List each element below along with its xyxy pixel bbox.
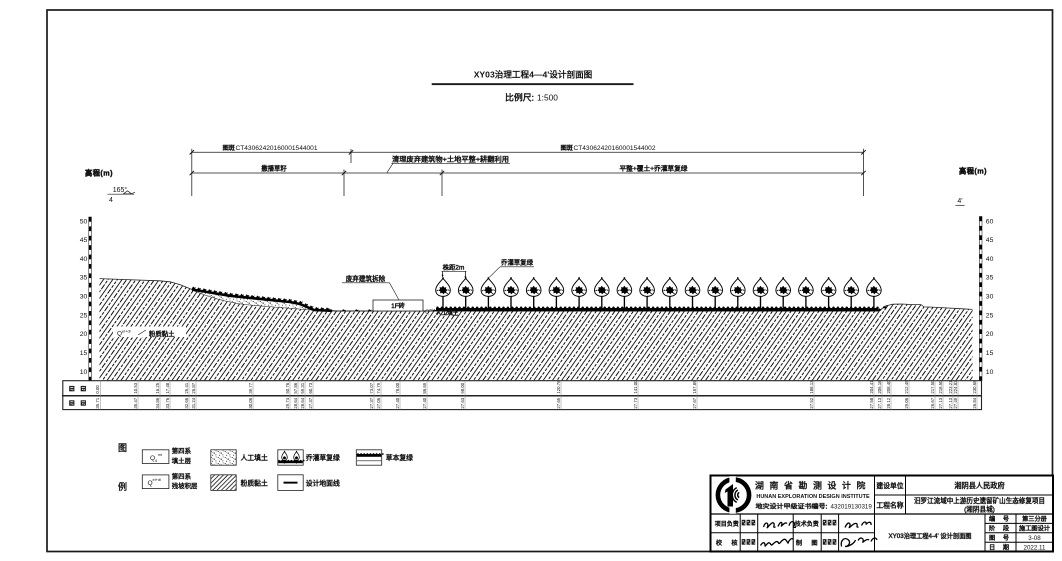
svg-text:阶 段: 阶 段: [989, 525, 1012, 533]
svg-text:10: 10: [80, 369, 88, 376]
svg-text:208.40: 208.40: [886, 380, 891, 394]
svg-text:157.89: 157.89: [692, 380, 697, 394]
svg-text:45: 45: [80, 237, 88, 244]
svg-text:2022.11: 2022.11: [1024, 544, 1046, 551]
svg-text:高程(m): 高程(m): [85, 169, 113, 178]
svg-text:218.50: 218.50: [938, 380, 943, 394]
svg-text:核: 核: [731, 539, 737, 547]
svg-text:27.37: 27.37: [369, 397, 374, 408]
svg-text:35.71: 35.71: [95, 397, 100, 408]
svg-text:20: 20: [986, 331, 994, 338]
svg-text:40: 40: [80, 256, 88, 263]
svg-text:78.00: 78.00: [395, 382, 400, 393]
svg-text:33.76: 33.76: [165, 397, 170, 408]
svg-text:填土层: 填土层: [172, 456, 192, 465]
svg-text:39.77: 39.77: [248, 382, 253, 393]
svg-text:CT43062420160001544002: CT43062420160001544002: [574, 145, 657, 152]
svg-text:第四系: 第四系: [172, 446, 191, 455]
svg-text:31.24: 31.24: [191, 397, 196, 408]
svg-text:27.58: 27.58: [869, 397, 874, 408]
svg-text:1:500: 1:500: [537, 93, 558, 103]
svg-text:86.69: 86.69: [422, 382, 427, 393]
svg-text:27.73: 27.73: [633, 397, 638, 408]
svg-text:35: 35: [80, 275, 88, 282]
svg-text:高程(m): 高程(m): [959, 167, 987, 176]
svg-text:4: 4: [109, 197, 113, 204]
svg-text:10: 10: [986, 369, 994, 376]
svg-text:平整+覆土+乔灌草复绿: 平整+覆土+乔灌草复绿: [620, 163, 689, 172]
svg-text:35: 35: [986, 275, 994, 282]
svg-text:16.25: 16.25: [155, 382, 160, 393]
svg-text:217.50: 217.50: [930, 380, 935, 394]
svg-text:例: 例: [118, 481, 127, 492]
svg-text:230.68: 230.68: [972, 380, 977, 394]
svg-text:株距2m: 株距2m: [443, 262, 465, 271]
svg-text:1F砖: 1F砖: [391, 302, 404, 310]
svg-text:30: 30: [986, 294, 994, 301]
svg-text:212.45: 212.45: [904, 380, 909, 394]
svg-text:图斑: 图斑: [223, 145, 235, 152]
svg-text:10.53: 10.53: [133, 382, 138, 393]
svg-text:ml: ml: [158, 452, 162, 457]
svg-text:图: 图: [118, 443, 127, 453]
svg-text:45: 45: [986, 237, 994, 244]
svg-text:粉质黏土: 粉质黏土: [241, 478, 268, 487]
svg-text:粉质黏土: 粉质黏土: [149, 329, 175, 338]
svg-text:28.12: 28.12: [886, 397, 891, 408]
svg-text:第三分册: 第三分册: [1022, 515, 1047, 523]
svg-text:15: 15: [80, 350, 88, 357]
svg-text:28.64: 28.64: [293, 397, 298, 408]
svg-text:26.87: 26.87: [191, 382, 196, 393]
svg-text:图 号: 图 号: [989, 535, 1012, 542]
svg-text:28.64: 28.64: [300, 397, 305, 408]
svg-text:27.13: 27.13: [877, 397, 882, 408]
svg-text:汨罗江流域中上游历史遗留矿山生态修复项目: 汨罗江流域中上游历史遗留矿山生态修复项目: [914, 496, 1045, 505]
svg-text:el+dl: el+dl: [122, 328, 131, 333]
svg-text:27.65: 27.65: [556, 397, 561, 408]
svg-text:撒播草籽: 撒播草籽: [261, 163, 287, 172]
svg-text:残坡积层: 残坡积层: [172, 481, 198, 490]
svg-text:CT43062420160001544001: CT43062420160001544001: [236, 145, 319, 152]
svg-text:141.00: 141.00: [633, 380, 638, 394]
svg-text:草本复绿: 草本复绿: [386, 453, 413, 462]
svg-text:el+dl: el+dl: [153, 477, 162, 482]
svg-text:建设单位: 建设单位: [876, 481, 903, 490]
svg-text:35.47: 35.47: [133, 397, 138, 408]
svg-text:27.63: 27.63: [460, 397, 465, 408]
svg-text:32.66: 32.66: [184, 397, 189, 408]
svg-text:图斑: 图斑: [561, 145, 573, 152]
svg-text:206.18: 206.18: [877, 380, 882, 394]
svg-text:17.48: 17.48: [165, 382, 170, 393]
svg-text:50.76: 50.76: [285, 382, 290, 393]
svg-text:0.00: 0.00: [95, 385, 100, 394]
svg-text:74.79: 74.79: [376, 382, 381, 393]
svg-text:27.40: 27.40: [422, 397, 427, 408]
svg-text:120.76: 120.76: [556, 380, 561, 394]
svg-text:432019130319: 432019130319: [831, 504, 873, 511]
svg-text:第四系: 第四系: [172, 471, 191, 480]
svg-text:27.13: 27.13: [938, 397, 943, 408]
svg-text:29.74: 29.74: [285, 397, 290, 408]
svg-text:73.07: 73.07: [369, 382, 374, 393]
svg-text:ml: ml: [429, 308, 433, 312]
svg-text:施工图设计: 施工图设计: [1019, 525, 1050, 533]
svg-text:29.06: 29.06: [904, 397, 909, 408]
svg-text:XY03治理工程4-4' 设计剖面图: XY03治理工程4-4' 设计剖面图: [889, 531, 972, 540]
svg-text:224.82: 224.82: [953, 380, 958, 394]
svg-text:60.73: 60.73: [308, 382, 313, 393]
svg-text:项目负责: 项目负责: [715, 520, 739, 528]
svg-text:188.13: 188.13: [809, 380, 814, 394]
svg-text:人工填土: 人工填土: [436, 309, 459, 317]
svg-text:编 号: 编 号: [989, 515, 1012, 523]
svg-text:98.00: 98.00: [460, 382, 465, 393]
svg-text:27.37: 27.37: [308, 397, 313, 408]
svg-text:27.67: 27.67: [692, 397, 697, 408]
svg-text:清理废弃建筑物+土地平整+耕翻利用: 清理废弃建筑物+土地平整+耕翻利用: [392, 155, 509, 164]
svg-text:3-08: 3-08: [1028, 535, 1041, 542]
svg-text:20: 20: [80, 331, 88, 338]
svg-text:26.67: 26.67: [930, 397, 935, 408]
svg-text:27.40: 27.40: [395, 397, 400, 408]
svg-text:50: 50: [80, 218, 88, 225]
svg-text:27.06: 27.06: [376, 397, 381, 408]
svg-text:60: 60: [986, 218, 994, 225]
svg-text:34.86: 34.86: [155, 397, 160, 408]
svg-text:30: 30: [80, 294, 88, 301]
svg-text:27.52: 27.52: [809, 397, 814, 408]
svg-text:204.41: 204.41: [869, 380, 874, 394]
svg-text:设计地面线: 设计地面线: [306, 478, 340, 487]
svg-text:地灾设计甲级证书编号:: 地灾设计甲级证书编号:: [756, 503, 828, 511]
svg-text:59.31: 59.31: [300, 382, 305, 393]
svg-text:25: 25: [986, 312, 994, 319]
svg-text:湖南省勘测设计院: 湖南省勘测设计院: [755, 480, 871, 491]
svg-text:25: 25: [80, 312, 88, 319]
svg-text:技术负责: 技术负责: [795, 520, 819, 528]
svg-text:人工填土: 人工填土: [241, 453, 268, 462]
svg-text:57.86: 57.86: [293, 382, 298, 393]
svg-text:制: 制: [796, 539, 802, 547]
svg-text:图: 图: [811, 540, 817, 547]
svg-text:校: 校: [716, 539, 722, 547]
svg-text:15: 15: [986, 350, 994, 357]
svg-text:HUNAN EXPLORATION DESIGN INSTI: HUNAN EXPLORATION DESIGN INSTITUTE: [756, 494, 870, 500]
svg-text:废弃建筑拆除: 废弃建筑拆除: [346, 274, 386, 283]
svg-text:XY03治理工程4—4'设计剖面图: XY03治理工程4—4'设计剖面图: [474, 69, 593, 80]
svg-text:25.41: 25.41: [184, 382, 189, 393]
svg-text:湘阴县人民政府: 湘阴县人民政府: [954, 481, 1004, 490]
svg-text:40: 40: [986, 256, 994, 263]
svg-text:比例尺:: 比例尺:: [505, 93, 534, 103]
svg-text:日 期: 日 期: [989, 543, 1012, 551]
svg-text:26.84: 26.84: [972, 397, 977, 408]
svg-text:乔灌草复绿: 乔灌草复绿: [501, 258, 534, 267]
svg-text:(湘阴县城): (湘阴县城): [964, 505, 995, 514]
svg-text:4': 4': [957, 198, 962, 205]
svg-text:27.49: 27.49: [953, 397, 958, 408]
svg-text:工程名称: 工程名称: [876, 500, 903, 509]
svg-text:乔灌草复绿: 乔灌草复绿: [306, 453, 340, 462]
svg-text:30.06: 30.06: [248, 397, 253, 408]
